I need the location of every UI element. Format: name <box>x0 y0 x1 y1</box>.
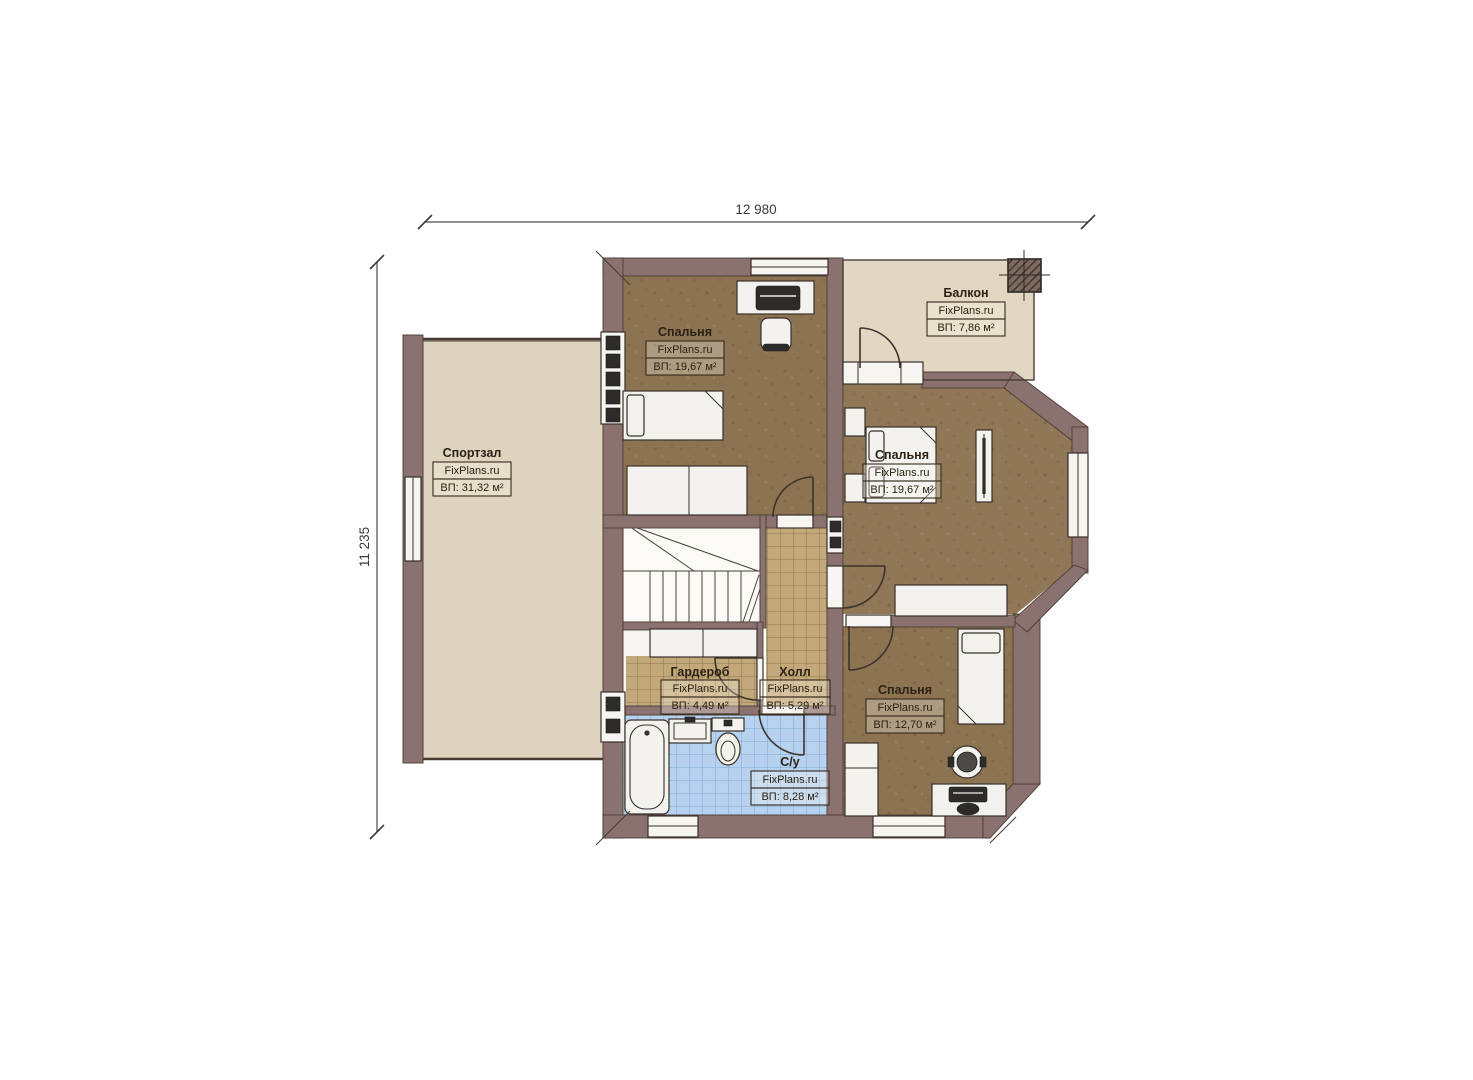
vent-shaft-spine <box>827 517 843 553</box>
room-name: Спальня <box>878 683 932 697</box>
room-name: Гардероб <box>670 665 729 679</box>
cabinet-icon <box>895 585 1007 616</box>
speaker-icon <box>957 803 979 815</box>
wall-bedroomTL-bottom-left <box>603 515 777 528</box>
wall-stairs-hall <box>760 515 766 628</box>
wall-right-lower <box>1013 614 1040 784</box>
chair-icon <box>761 318 791 351</box>
radiator-icon <box>976 430 992 502</box>
room-watermark: FixPlans.ru <box>874 467 929 479</box>
room-name: Холл <box>779 665 810 679</box>
wall-bedroomTL-bottom-right <box>813 515 827 528</box>
monitor-icon <box>949 787 987 802</box>
wall-wardrobe-hall-upper <box>757 622 763 660</box>
desk-with-monitor-icon <box>932 784 1006 816</box>
room-area: ВП: 5,29 м² <box>766 700 823 712</box>
dimension-width-label: 12 980 <box>735 202 776 217</box>
room-area: ВП: 8,28 м² <box>761 791 818 803</box>
floor-plan-drawing: Спортзал FixPlans.ru ВП: 31,32 м² Спальн… <box>0 0 1473 1080</box>
room-name: Спальня <box>658 325 712 339</box>
nightstand-icon <box>845 408 865 436</box>
room-area: ВП: 4,49 м² <box>671 700 728 712</box>
room-watermark: FixPlans.ru <box>762 774 817 786</box>
bathtub-icon <box>625 720 669 814</box>
dimension-height-label: 11 235 <box>357 527 372 567</box>
sink-icon <box>669 717 711 743</box>
threshold-balcony <box>843 362 923 384</box>
room-watermark: FixPlans.ru <box>444 465 499 477</box>
window-top-wall <box>751 259 828 275</box>
wardrobe-cabinet-icon <box>845 743 878 816</box>
floor-plan-page: Спортзал FixPlans.ru ВП: 31,32 м² Спальн… <box>0 0 1473 1080</box>
room-label-wardrobe: Гардероб FixPlans.ru ВП: 4,49 м² <box>661 665 739 714</box>
desk-icon <box>737 281 814 314</box>
printer-icon <box>756 286 800 310</box>
dimension-left: 11 235 <box>357 255 384 839</box>
room-watermark: FixPlans.ru <box>672 683 727 695</box>
bed-single-vertical-icon <box>958 629 1004 724</box>
room-area: ВП: 19,67 м² <box>653 361 717 373</box>
room-watermark: FixPlans.ru <box>657 344 712 356</box>
room-area: ВП: 12,70 м² <box>873 719 937 731</box>
window-bathroom-bottom <box>648 816 698 837</box>
room-name: Спальня <box>875 448 929 462</box>
room-watermark: FixPlans.ru <box>767 683 822 695</box>
dimension-top: 12 980 <box>418 202 1095 229</box>
room-area: ВП: 7,86 м² <box>937 322 994 334</box>
threshold-hall-bedroomR <box>827 566 843 608</box>
floor-gym <box>423 341 605 759</box>
window-bay-right <box>1068 453 1088 537</box>
closet-wardrobe-room <box>650 629 757 657</box>
window-recess-left-upper <box>601 332 625 424</box>
room-watermark: FixPlans.ru <box>938 305 993 317</box>
window-bedroomBR-bottom <box>873 816 945 837</box>
bed-single-icon <box>623 391 723 440</box>
floors <box>423 260 1072 815</box>
window-recess-left-lower <box>601 692 625 742</box>
window-gym-left <box>405 477 421 561</box>
room-area: ВП: 31,32 м² <box>440 482 504 494</box>
threshold-bedroomBR <box>846 615 891 627</box>
threshold-bedroomTL-hall <box>777 515 813 528</box>
room-name: Балкон <box>943 286 988 300</box>
room-name: Спортзал <box>443 446 502 460</box>
room-label-gym: Спортзал FixPlans.ru ВП: 31,32 м² <box>433 446 511 496</box>
room-area: ВП: 19,67 м² <box>870 484 934 496</box>
nightstand-icon <box>845 474 865 502</box>
wall-bedrooms-divider <box>889 615 1015 627</box>
room-name: С/у <box>780 755 800 769</box>
closet-bedroomTL <box>627 466 747 515</box>
room-watermark: FixPlans.ru <box>877 702 932 714</box>
